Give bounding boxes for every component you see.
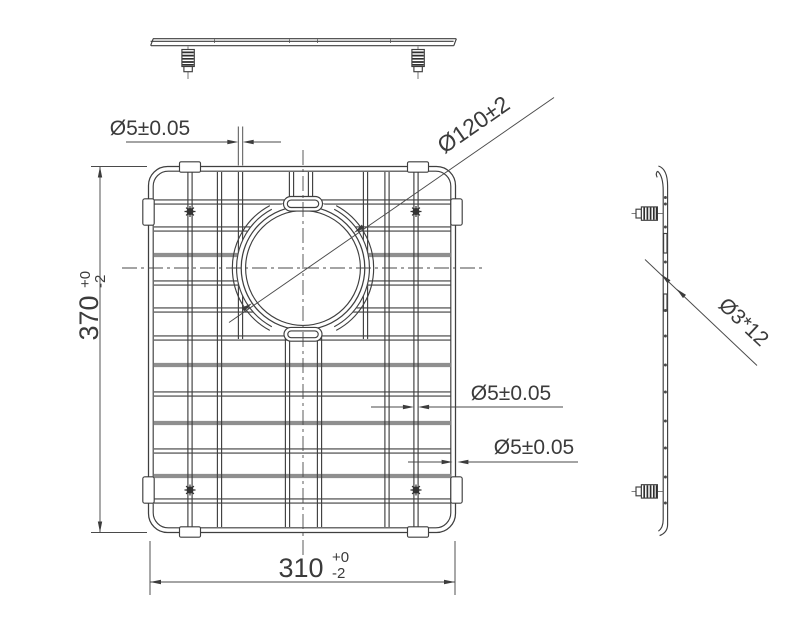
arrow-icon [243, 140, 254, 144]
arrow-icon [457, 460, 468, 464]
height-tol-minus: -2 [92, 275, 109, 288]
height-value: 370 [74, 295, 104, 340]
arrow-icon [98, 167, 102, 178]
hole-diameter-label: Ø120±2 [432, 90, 514, 158]
extension-lines [91, 167, 147, 533]
top-view-foot-left [182, 47, 194, 80]
side-view-foot-upper [632, 207, 664, 220]
dim-side-wire: Ø3*12 [645, 260, 773, 366]
dim-height: 370 +0 -2 [74, 167, 147, 533]
sink-grid-drawing: Ø5±0.05 Ø120±2 Ø5±0.05 Ø5±0.05 [0, 0, 800, 642]
side-view-strip [656, 166, 667, 536]
wire-diameter-label-low: Ø5±0.05 [494, 436, 574, 459]
arrow-icon [227, 140, 238, 144]
technical-drawing-page: Ø5±0.05 Ø120±2 Ø5±0.05 Ø5±0.05 [0, 0, 800, 642]
side-view [632, 166, 668, 536]
dim-width: 310 +0 -2 [150, 541, 455, 595]
wire-diameter-label-top: Ø5±0.05 [110, 117, 190, 140]
wire-diameter-label-mid: Ø5±0.05 [471, 382, 551, 405]
extension-lines [238, 127, 242, 166]
clip-profile-lower [664, 294, 667, 311]
side-view-foot-lower [632, 485, 664, 498]
arrow-icon [444, 580, 455, 584]
top-view [151, 39, 457, 79]
width-value: 310 [278, 553, 323, 583]
clip-profile-upper [664, 234, 667, 254]
width-tol-minus: -2 [332, 565, 345, 582]
front-view [122, 150, 485, 559]
arrow-icon [150, 580, 161, 584]
arrow-icon [418, 405, 429, 409]
arrow-icon [403, 405, 414, 409]
height-dimension-text: 370 +0 -2 [74, 271, 109, 341]
arrow-icon [98, 522, 102, 533]
top-view-bar [151, 39, 457, 46]
dim-wire-top-left: Ø5±0.05 [110, 117, 281, 166]
side-wire-diameter-label: Ø3*12 [714, 293, 773, 351]
dim-wire-low-right: Ø5±0.05 [408, 436, 578, 464]
width-tol-plus: +0 [332, 549, 349, 566]
top-view-foot-right [412, 47, 424, 80]
